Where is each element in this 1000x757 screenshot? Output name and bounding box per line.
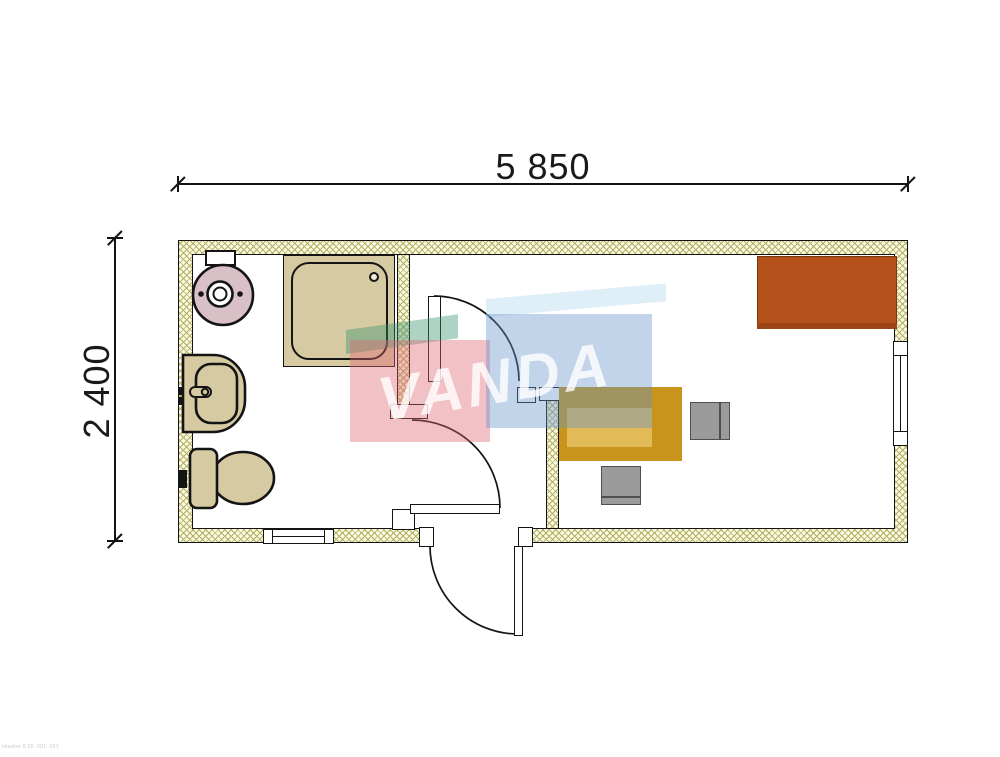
entrance-opening xyxy=(433,528,519,544)
entrance-jamb-right xyxy=(518,527,533,547)
office-door-leaf xyxy=(428,296,441,382)
floor-plan-canvas: 5 850 2 400 xyxy=(0,0,1000,757)
corner-faint-note: shadow 0,55 .001 .001 xyxy=(2,744,59,750)
window-right-mullion xyxy=(900,355,902,432)
desk-top-highlight xyxy=(567,408,652,447)
left-dimension-line xyxy=(114,237,116,542)
top-dimension-ext-left xyxy=(177,176,179,192)
top-dimension-label: 5 850 xyxy=(443,146,643,188)
sink-pipe-connection-1 xyxy=(179,387,186,395)
office-door-post xyxy=(517,387,536,403)
window-bathroom-mullion xyxy=(272,536,325,538)
top-dimension-line xyxy=(178,183,908,185)
entrance-door-arc xyxy=(430,546,518,634)
cabinet xyxy=(757,256,897,329)
toilet-pipe-connection xyxy=(179,470,187,488)
office-chair-right-backrest xyxy=(719,403,721,439)
left-dimension-ext-top xyxy=(107,237,123,239)
left-dimension-ext-bottom xyxy=(107,540,123,542)
office-chair-bottom xyxy=(601,466,641,505)
cabinet-front-edge xyxy=(757,323,897,329)
partition-bathroom xyxy=(397,254,410,406)
shower-drain xyxy=(369,272,379,282)
top-dimension-ext-right xyxy=(907,176,909,192)
office-chair-bottom-backrest xyxy=(602,496,640,498)
partition-office xyxy=(546,388,559,529)
sink-pipe-connection-2 xyxy=(179,397,186,405)
bathroom-door-leaf xyxy=(410,504,500,514)
partition-bathroom-jamb-top xyxy=(390,404,428,419)
entrance-door-leaf xyxy=(514,546,523,636)
entrance-jamb-left xyxy=(419,527,434,547)
office-chair-right xyxy=(690,402,730,440)
left-dimension-label: 2 400 xyxy=(76,311,118,471)
